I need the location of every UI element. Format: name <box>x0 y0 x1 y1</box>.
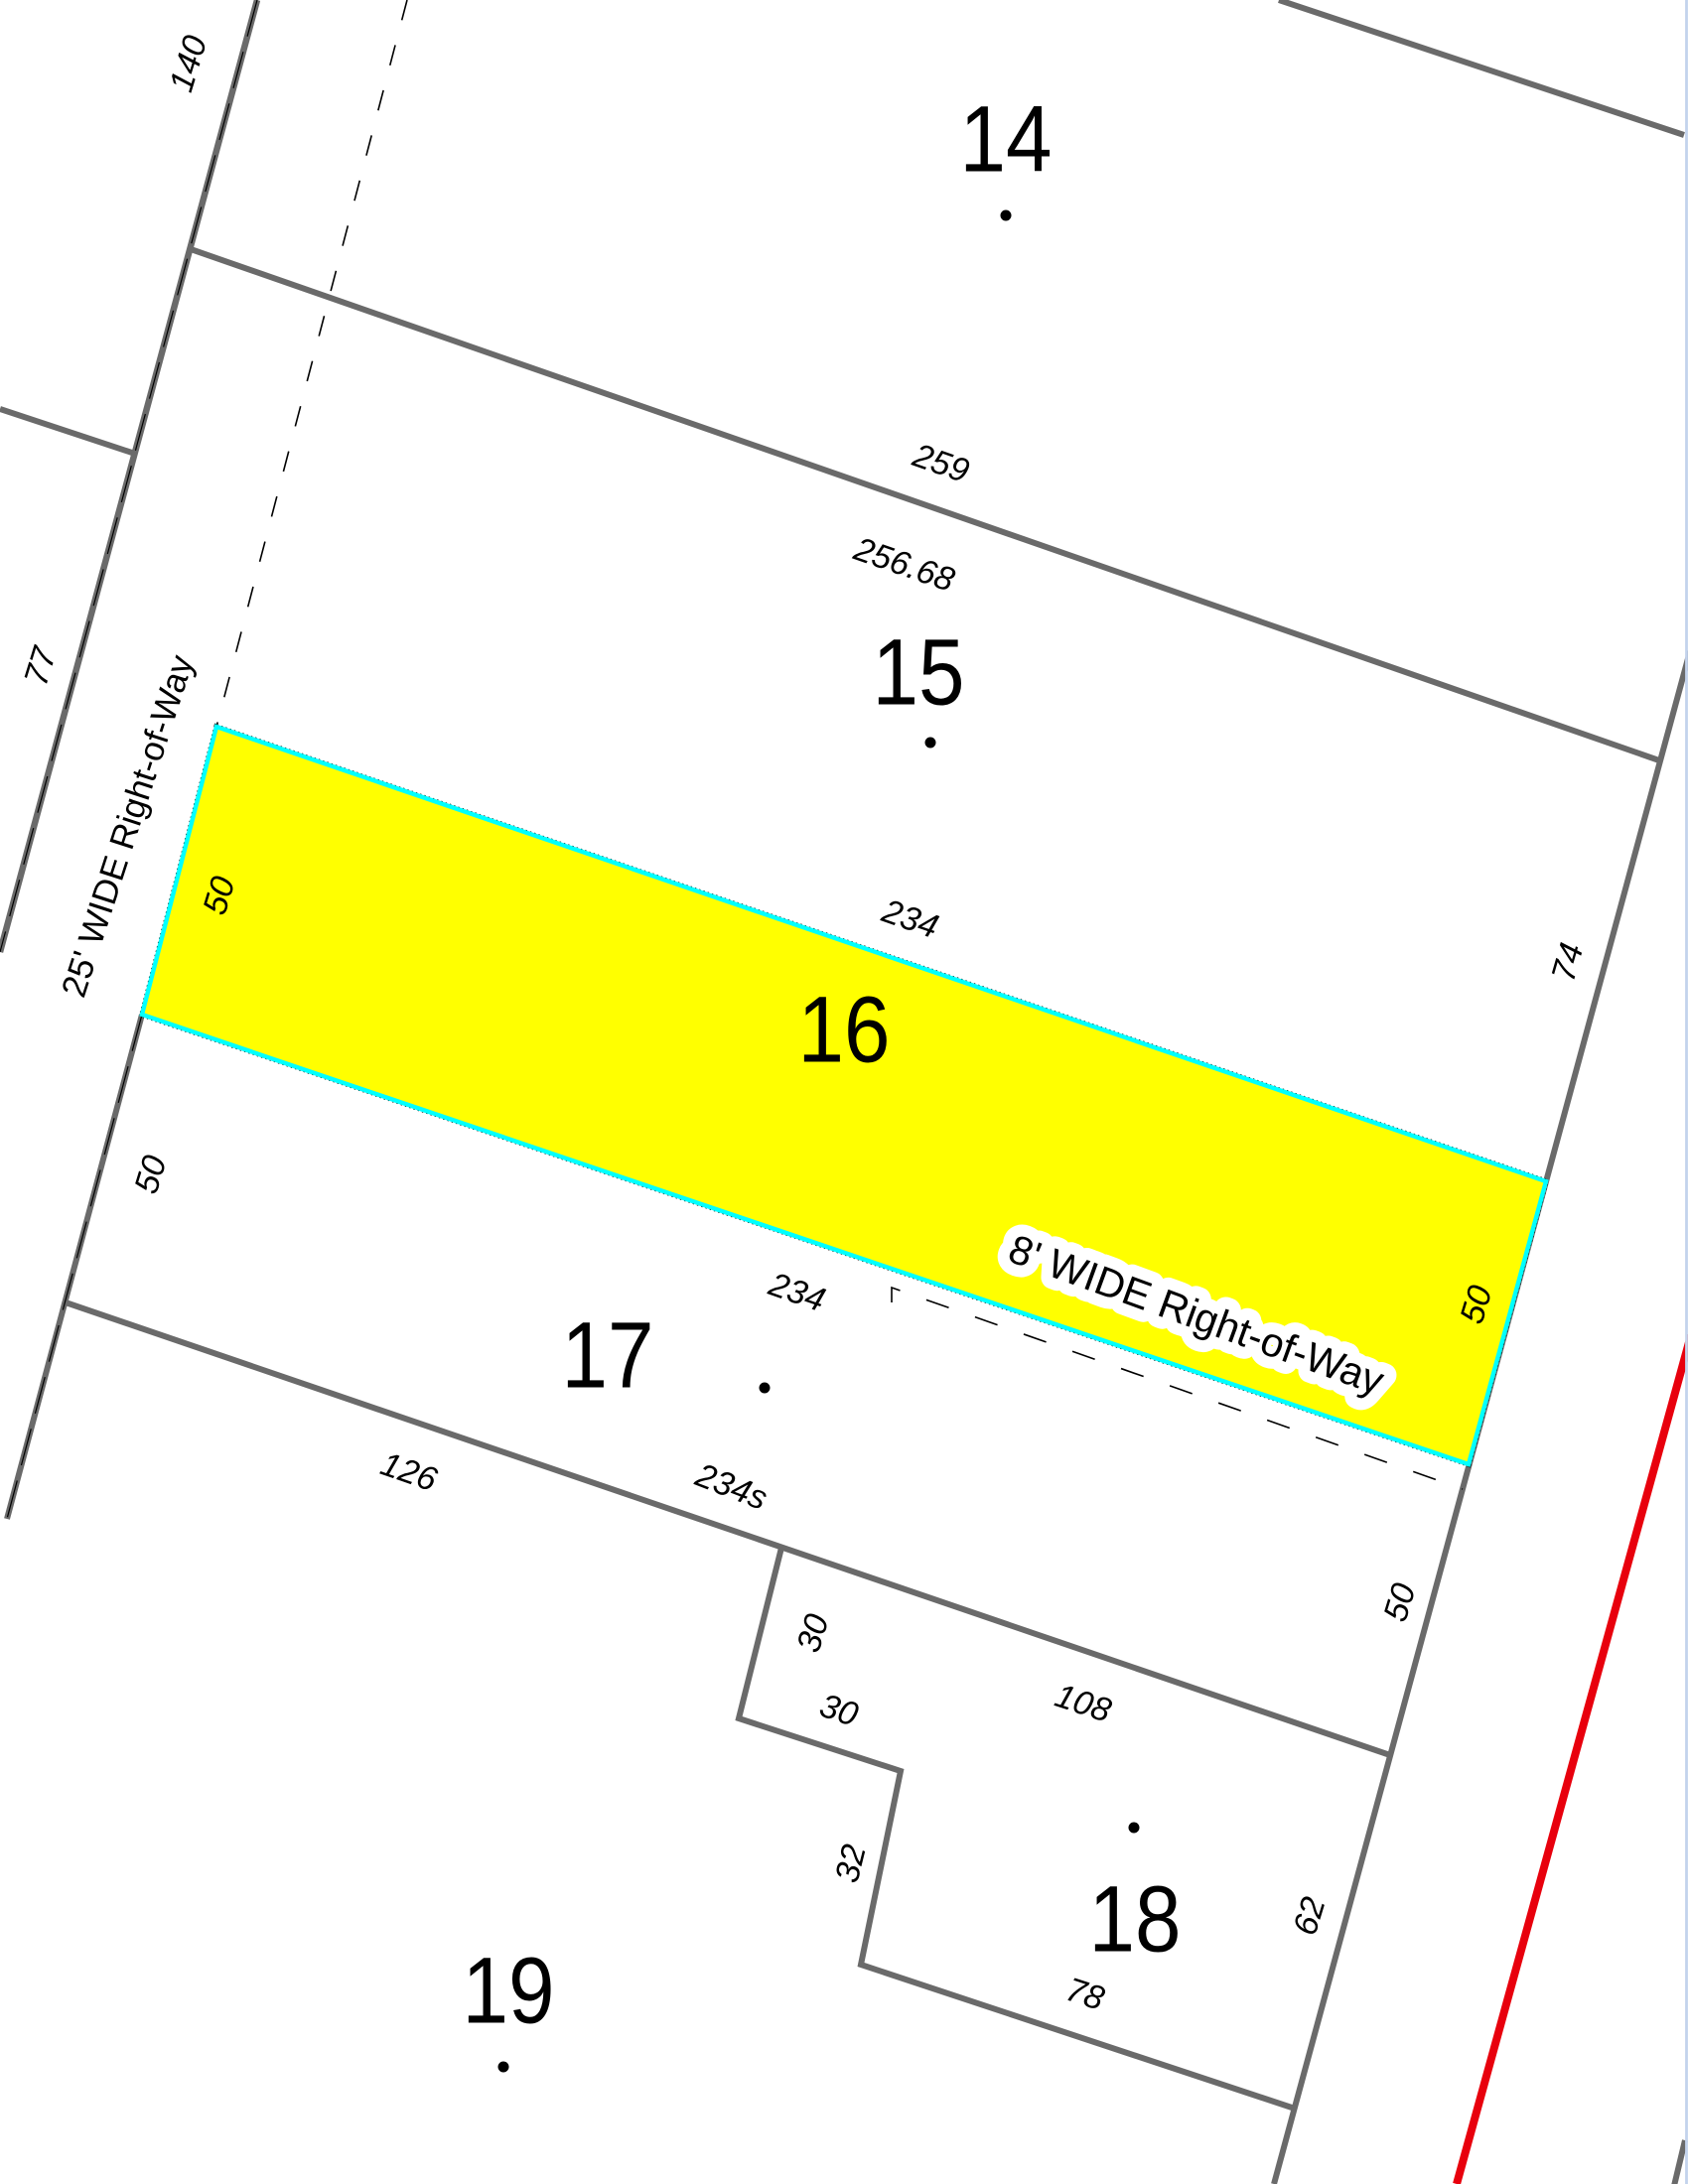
svg-text:15: 15 <box>873 619 965 725</box>
svg-text:16: 16 <box>798 977 891 1082</box>
svg-text:17: 17 <box>562 1302 654 1408</box>
svg-text:14: 14 <box>960 86 1053 192</box>
svg-text:19: 19 <box>463 1938 555 2043</box>
svg-text:18: 18 <box>1089 1866 1182 1972</box>
